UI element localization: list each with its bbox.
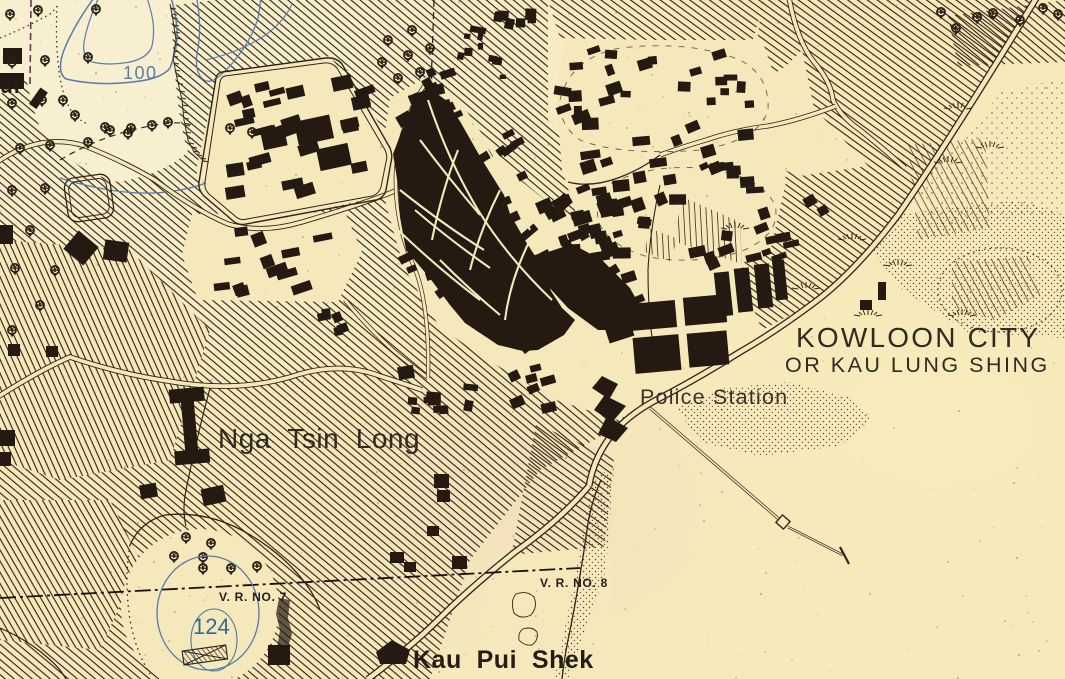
svg-text:KOWLOON CITY: KOWLOON CITY (796, 322, 1040, 353)
svg-text:V. R. NO. 8: V. R. NO. 8 (540, 576, 608, 590)
svg-text:Nga Tsin Long: Nga Tsin Long (218, 423, 420, 454)
svg-text:V. R. NO. 7: V. R. NO. 7 (219, 590, 287, 604)
svg-text:124: 124 (193, 614, 230, 639)
svg-text:OR KAU LUNG SHING: OR KAU LUNG SHING (785, 353, 1050, 377)
svg-text:100: 100 (123, 63, 158, 83)
svg-text:Police Station: Police Station (640, 385, 788, 409)
svg-text:Kau Pui Shek: Kau Pui Shek (413, 646, 594, 674)
svg-text:ui: ui (0, 75, 21, 98)
